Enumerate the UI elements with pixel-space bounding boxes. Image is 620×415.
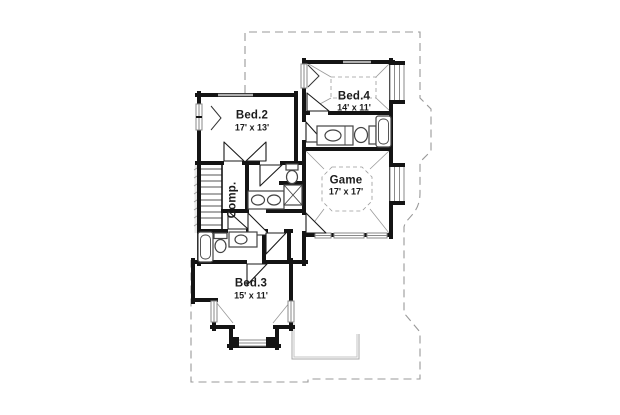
room-label-bed2: Bed.2 <box>236 110 268 122</box>
lower-bath-toilet <box>214 233 227 253</box>
floor-plan-drawing <box>0 0 620 415</box>
roof-line-below <box>292 321 359 359</box>
room-label-bed3: Bed.3 <box>235 278 267 290</box>
room-label-game: Game <box>330 175 363 187</box>
room-label-bed4: Bed.4 <box>338 91 370 103</box>
ceiling-lines-bed3 <box>216 302 290 323</box>
room-dims-game: 17' x 17' <box>329 188 363 197</box>
top-bath-toilet <box>355 126 377 144</box>
middle-bath-toilet <box>286 164 298 184</box>
room-label-comp: Comp. <box>227 182 239 219</box>
linen-closet <box>284 185 302 205</box>
middle-bath-vanity <box>248 191 284 209</box>
room-dims-bed2: 17' x 13' <box>235 124 269 133</box>
floor-plan-canvas: Bed.2 17' x 13' Bed.4 14' x 11' Game 17'… <box>0 0 620 415</box>
lower-bath-vanity <box>229 232 257 247</box>
lower-bath-tub <box>198 232 213 262</box>
room-dims-bed3: 15' x 11' <box>234 292 268 301</box>
top-bath-vanity <box>317 126 353 145</box>
room-dims-bed4: 14' x 11' <box>337 104 371 113</box>
top-bath-tub <box>376 116 391 147</box>
